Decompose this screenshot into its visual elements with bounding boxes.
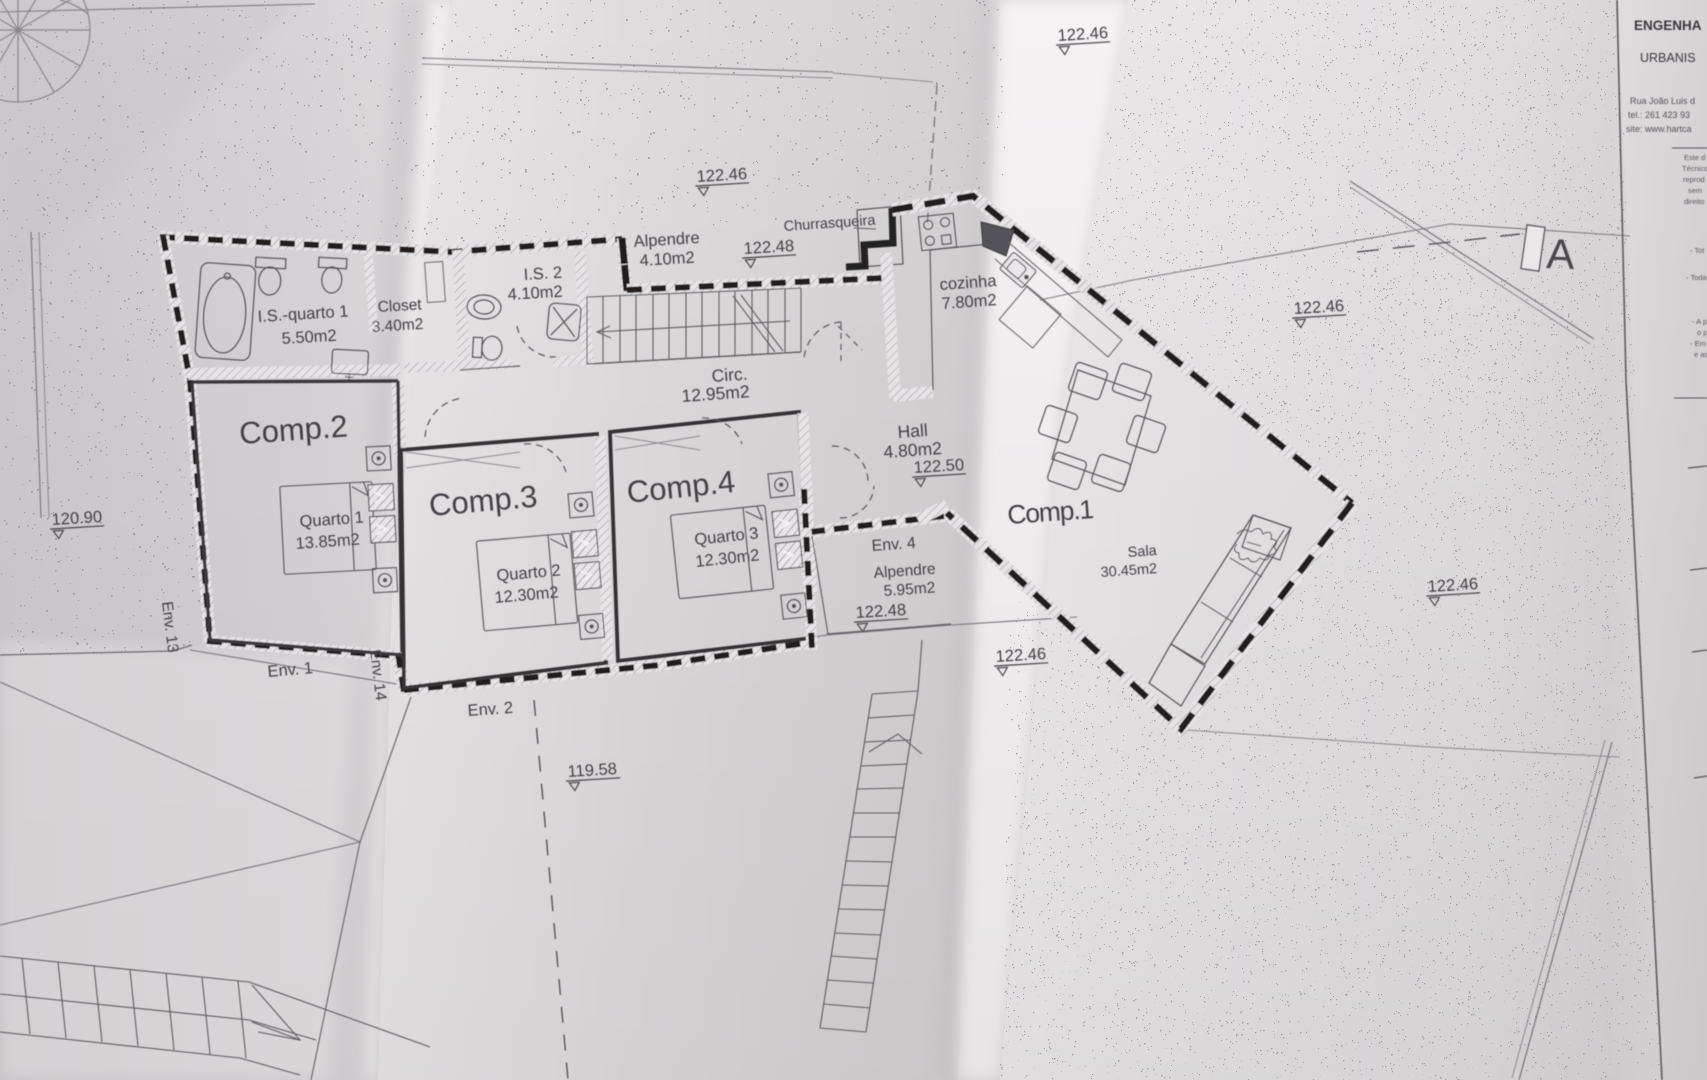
- svg-text:A: A: [1546, 230, 1576, 278]
- svg-text:Env. 4: Env. 4: [871, 535, 916, 555]
- svg-text:4.10m2: 4.10m2: [639, 249, 695, 270]
- svg-text:5.95m2: 5.95m2: [883, 579, 936, 600]
- svg-text:Sala: Sala: [1127, 543, 1158, 561]
- svg-text:reprod: reprod: [1683, 175, 1705, 184]
- svg-text:ENGENHA: ENGENHA: [1634, 18, 1702, 33]
- svg-text:e as: e as: [1694, 350, 1707, 359]
- svg-text:Técnico: Técnico: [1682, 164, 1707, 173]
- svg-text:Este d: Este d: [1684, 153, 1705, 162]
- svg-text:o p: o p: [1697, 328, 1707, 337]
- svg-text:site: www.hartca: site: www.hartca: [1626, 124, 1692, 134]
- svg-text:tel.: 261 423 93: tel.: 261 423 93: [1628, 110, 1690, 120]
- svg-text:Comp.1: Comp.1: [1006, 494, 1094, 530]
- svg-text:4.80m2: 4.80m2: [883, 438, 943, 462]
- svg-text:Env. 2: Env. 2: [467, 699, 514, 720]
- svg-text:Closet: Closet: [377, 296, 423, 316]
- svg-text:- Em: - Em: [1690, 339, 1706, 348]
- svg-text:- A p: - A p: [1692, 317, 1707, 326]
- svg-text:- Toda: - Toda: [1686, 273, 1707, 282]
- svg-text:sem: sem: [1688, 186, 1702, 195]
- svg-text:5.50m2: 5.50m2: [281, 327, 337, 348]
- svg-text:7.80m2: 7.80m2: [941, 291, 997, 313]
- svg-text:direito: direito: [1684, 197, 1704, 206]
- svg-text:URBANIS: URBANIS: [1640, 51, 1696, 65]
- svg-text:I.S. 2: I.S. 2: [523, 264, 563, 284]
- svg-text:- Tot: - Tot: [1690, 246, 1705, 255]
- svg-text:Rua João Luis d: Rua João Luis d: [1630, 96, 1695, 106]
- svg-text:4.10m2: 4.10m2: [507, 283, 563, 304]
- svg-text:3.40m2: 3.40m2: [371, 316, 424, 336]
